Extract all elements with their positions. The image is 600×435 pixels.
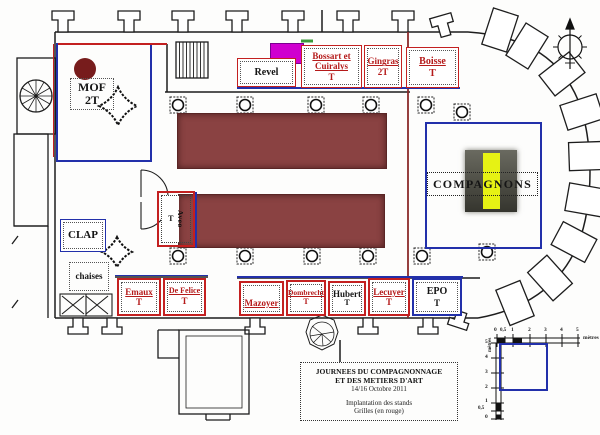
stand-label: De Felice <box>169 287 200 296</box>
spiral-staircase-west <box>20 80 52 112</box>
stand-label: Mazoyer <box>245 298 279 308</box>
stand-tables: T <box>303 298 308 307</box>
stand-label: EPO <box>427 286 448 297</box>
scale-tick: 0 <box>494 327 497 333</box>
stand-tables: T <box>328 72 334 82</box>
stand-hubert: Hubert T <box>328 281 366 316</box>
scale-tick: 4 <box>560 327 563 333</box>
stand-tables: T <box>386 297 392 307</box>
spiral-staircase-south <box>306 315 338 350</box>
stand-clap: CLAP <box>60 219 106 252</box>
stand-gingras: Gingras 2T <box>364 45 402 88</box>
stand-revel: Revel <box>237 58 296 87</box>
stair-comb <box>176 42 208 78</box>
stand-tables: T <box>434 298 440 308</box>
scale-tick: 5 <box>576 327 579 333</box>
blue-edge-line <box>195 192 197 248</box>
stand-label: Aveo <box>175 210 183 228</box>
church-floor-plan: Revel Bossart et Cuiralys T Gingras 2T B… <box>0 0 600 435</box>
stand-mazoyer: Mazoyer <box>239 281 284 316</box>
stand-label: Emaux <box>125 287 153 297</box>
event-date: 14/16 Octobre 2011 <box>301 385 457 393</box>
stand-label: Cuiralys <box>315 61 348 71</box>
stand-tables: T <box>136 297 142 307</box>
area-label: chaises <box>76 271 103 281</box>
stand-tables: 2T <box>378 67 389 77</box>
scale-tick: 1 <box>485 398 488 404</box>
stand-lecuyer: Lecuyer T <box>368 278 410 316</box>
legend-note-line1: Implantation des stands <box>301 399 457 407</box>
sacristy <box>158 330 249 420</box>
stand-aveo: T Aveo <box>157 191 195 247</box>
scale-tick: 2 <box>485 384 488 390</box>
stand-de-felice: De Felice T <box>163 278 206 316</box>
stand-compagnons: COMPAGNONS <box>427 172 538 196</box>
legend-note-line2: Grilles (en rouge) <box>301 407 457 415</box>
title-block: JOURNEES DU COMPAGNONNAGE ET DES METIERS… <box>300 362 458 421</box>
bench-block <box>60 294 112 316</box>
stand-tables: 2T <box>85 94 99 107</box>
scale-tick: 2 <box>528 327 531 333</box>
scale-tick: 3 <box>485 369 488 375</box>
event-title-line1: JOURNEES DU COMPAGNONNAGE <box>301 367 457 376</box>
stand-emaux: Emaux T <box>117 278 161 316</box>
stand-label: COMPAGNONS <box>433 177 532 192</box>
stand-epo: EPO T <box>412 278 462 316</box>
chaises-area: chaises <box>69 262 109 291</box>
stand-label: Lecuyer <box>373 287 405 297</box>
stand-tables: T <box>181 296 187 306</box>
event-title-line2: ET DES METIERS D'ART <box>301 376 457 385</box>
stand-tables: T <box>429 68 436 79</box>
stand-dombrecht: Dombrecht T <box>286 280 326 316</box>
stand-tables: T <box>168 215 173 224</box>
stand-bossart: Bossart et Cuiralys T <box>301 45 362 88</box>
scale-tick: 0,5 <box>478 406 484 411</box>
emaux-blue-line <box>115 275 208 276</box>
stand-label: Gingras <box>368 56 399 66</box>
stand-mof: MOF 2T <box>68 76 116 112</box>
stand-label: Boisse <box>419 56 446 67</box>
scale-blue-square <box>499 343 548 391</box>
stand-label: CLAP <box>68 229 98 241</box>
grille-red-top-line <box>58 43 167 45</box>
nave-block-lower <box>178 194 385 248</box>
scale-tick: 1 <box>511 327 514 333</box>
stand-label: Revel <box>255 67 279 78</box>
scale-unit: mètres <box>488 338 493 352</box>
stand-label: Bossart et <box>312 51 350 61</box>
stand-boisse: Boisse T <box>406 47 459 88</box>
scale-tick: 0,5 <box>500 328 506 333</box>
scale-tick: 4 <box>485 354 488 360</box>
scale-unit: mètres <box>583 335 599 341</box>
nave-block-upper <box>177 113 387 169</box>
grille-red-left-line <box>53 44 54 157</box>
stand-tables: T <box>344 299 349 308</box>
scale-tick: 0 <box>485 414 488 420</box>
stand-label: MOF <box>78 81 106 94</box>
scale-tick: 3 <box>544 327 547 333</box>
